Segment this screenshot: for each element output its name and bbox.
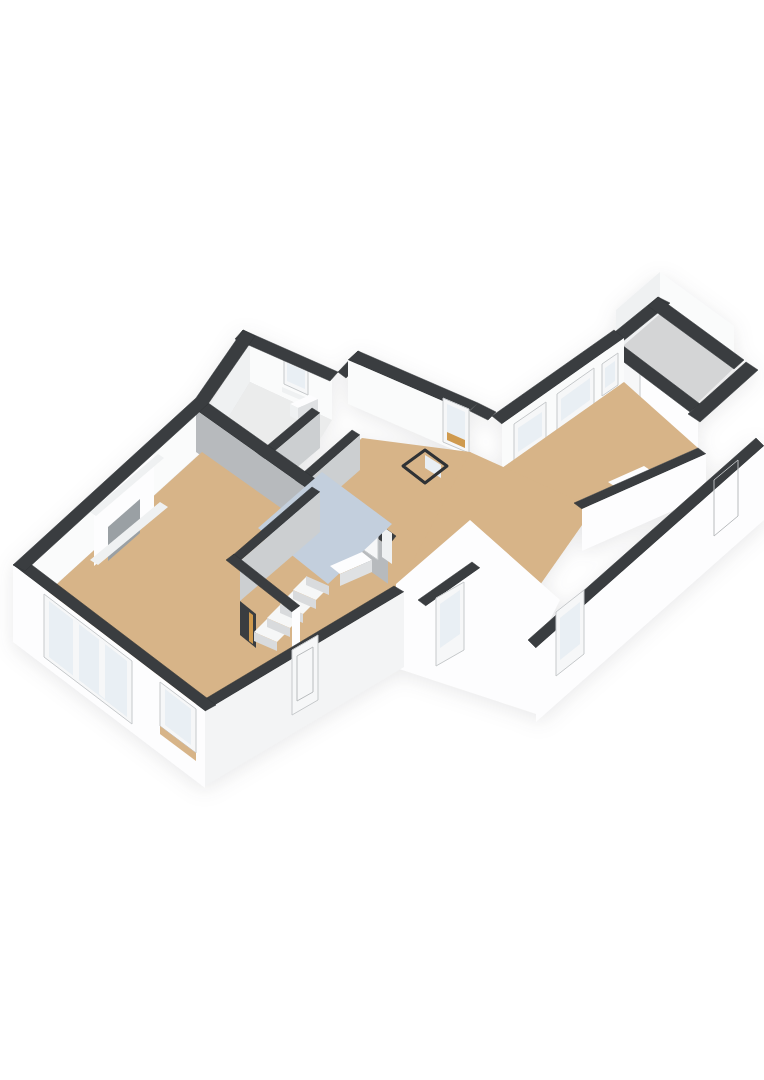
bay-window-mullion	[73, 619, 79, 681]
floorplan-page	[0, 0, 764, 1080]
floorplan-3d-canvas	[0, 0, 764, 1080]
bay-window-mullion	[99, 639, 105, 699]
closet-door-wood	[249, 612, 253, 644]
floorplan-model	[13, 272, 764, 788]
